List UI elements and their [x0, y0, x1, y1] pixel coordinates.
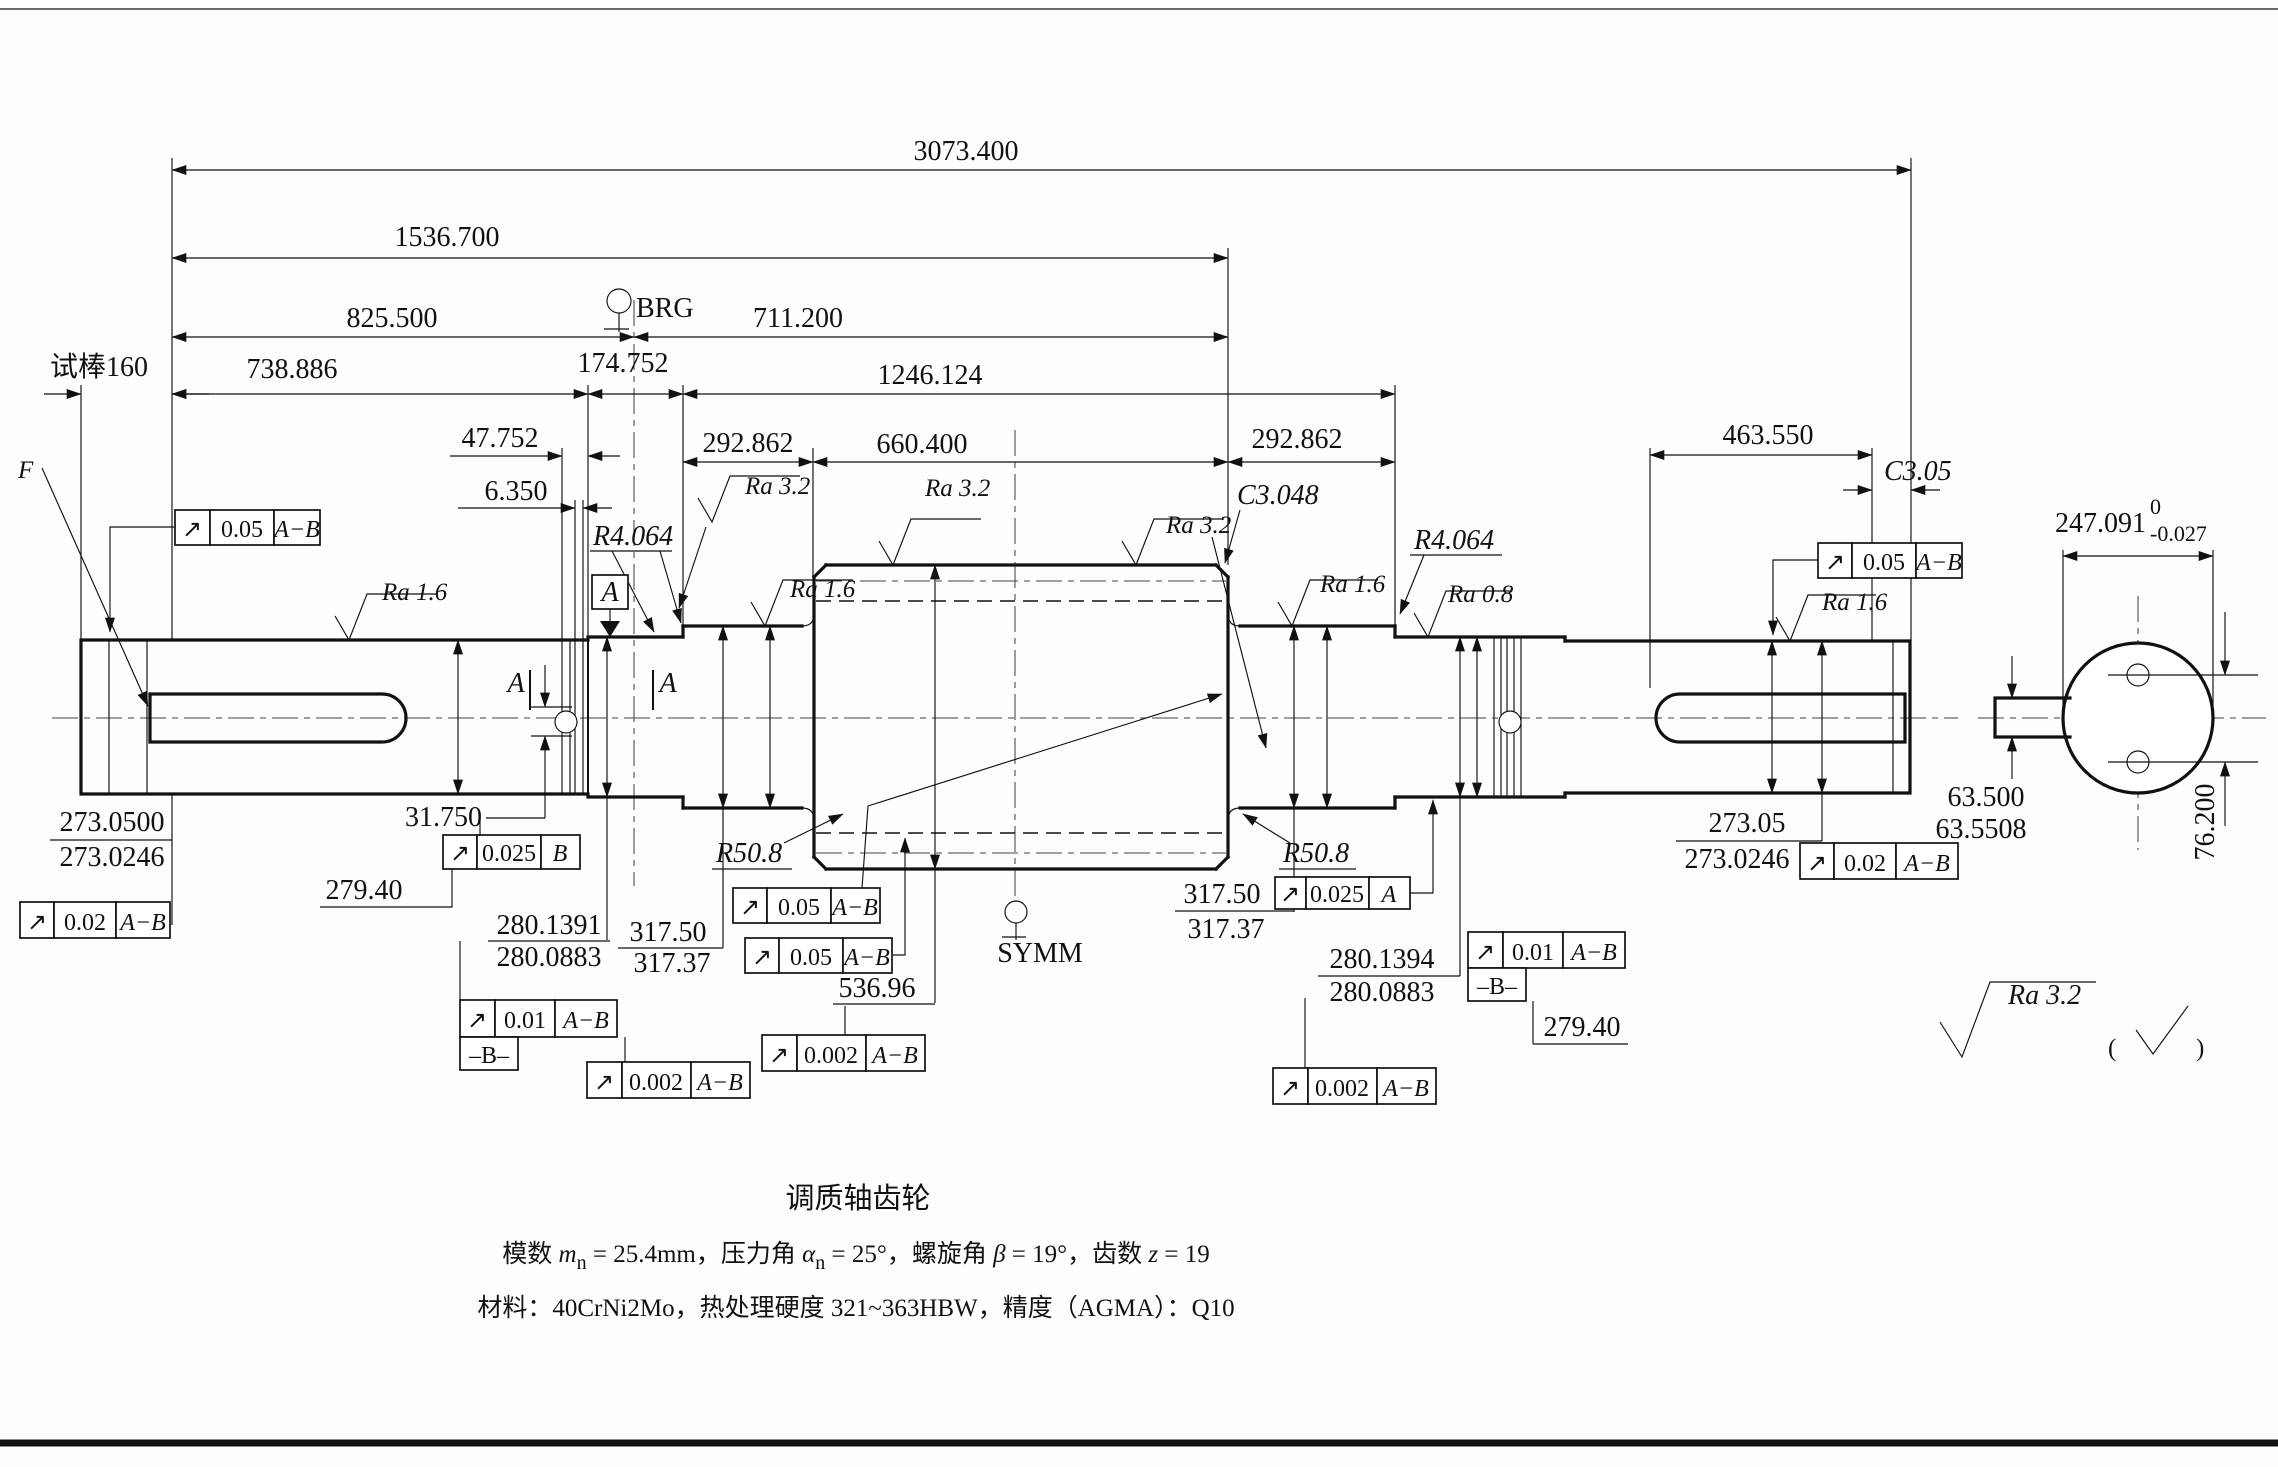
r508-left-label: R50.8 [715, 838, 782, 869]
runout-icon: ↗ [769, 1043, 789, 1069]
fcf-runout-002-left: ↗ 0.02 A−B [20, 902, 170, 938]
ra32-label3: Ra 3.2 [1165, 512, 1231, 539]
d536-label: 536.96 [839, 973, 916, 1004]
r508-right-label: R50.8 [1282, 838, 1349, 869]
fcf-runout-0002-c: ↗ 0.002 A−B [1273, 998, 1436, 1104]
gear-body [814, 565, 1228, 869]
datum-a-flag: A [592, 575, 628, 637]
fcf-value: 0.05 [221, 517, 263, 543]
fcf-datum: A [1380, 882, 1397, 908]
brg-centerline-mark: BRG [604, 289, 694, 332]
fcf-datum: A−B [1914, 550, 1962, 576]
dim-660-label: 660.400 [877, 429, 968, 460]
runout-icon: ↗ [594, 1070, 614, 1096]
fcf-value: 0.02 [64, 910, 106, 936]
ra16-label3: Ra 1.6 [1319, 571, 1386, 598]
d247-sup: 0 [2150, 494, 2161, 519]
dim-280-right-labels: 280.1394 280.0883 [1318, 944, 1460, 1008]
dim-292L-label: 292.862 [703, 428, 794, 459]
fcf-datum: A−B [870, 1043, 918, 1069]
dim-536-labels: 536.96 [833, 973, 935, 1004]
ra16-label: Ra 1.6 [381, 579, 448, 606]
drawing-canvas: 3073.400 1536.700 825.500 711.200 BRG 试棒… [0, 0, 2278, 1467]
fcf-value: 0.025 [482, 841, 536, 867]
page-border [0, 9, 2278, 1443]
runout-icon: ↗ [182, 517, 202, 543]
fcf-datum: A−B [1569, 940, 1617, 966]
d31750-label: 31.750 [405, 802, 482, 833]
runout-icon: ↗ [467, 1008, 487, 1034]
r4064-left-label: R4.064 [592, 521, 673, 552]
right-relief-grooves [1494, 637, 1521, 797]
ra16-label2: Ra 1.6 [789, 576, 856, 603]
fcf-value: 0.025 [1310, 882, 1364, 908]
fcf-runout-0002-b: ↗ 0.002 A−B [762, 1006, 925, 1071]
fcf-datum: A−B [272, 517, 320, 543]
symm-mark: SYMM [997, 901, 1083, 969]
d280L-lo: 280.0883 [497, 942, 602, 973]
datum-b-tag: –B– [1476, 974, 1518, 1000]
d317L-lo: 317.37 [634, 948, 711, 979]
ra16-label4: Ra 1.6 [1821, 589, 1888, 616]
paren-close: ) [2196, 1035, 2204, 1062]
dim-174-label: 174.752 [578, 348, 669, 379]
datum-b-tag: –B– [468, 1043, 510, 1069]
d280R-lo: 280.0883 [1330, 977, 1435, 1008]
dim-292R-label: 292.862 [1252, 424, 1343, 455]
r4064-right-label: R4.064 [1413, 525, 1494, 556]
dim-testbar: 试棒160 [44, 351, 209, 394]
c3048-label: C3.048 [1237, 480, 1319, 511]
callout-r508-right: R50.8 [1243, 814, 1356, 869]
symm-label: SYMM [997, 938, 1083, 969]
fcf-datum: A−B [561, 1008, 609, 1034]
paren-open: ( [2108, 1035, 2116, 1062]
d63-hi: 63.500 [1948, 782, 2025, 813]
fcf-datum: A−B [830, 895, 878, 921]
dim-738: 738.886 [172, 354, 588, 394]
dim-3073-label: 3073.400 [914, 136, 1019, 167]
d76-label: 76.200 [2190, 784, 2221, 861]
d317L-hi: 317.50 [630, 917, 707, 948]
fcf-runout-002-right: ↗ 0.02 A−B [1800, 843, 1958, 879]
dim-c305-label: C3.05 [1884, 456, 1952, 487]
datum-f-letter: F [17, 457, 34, 484]
runout-icon: ↗ [1280, 882, 1300, 908]
basic-check-icon [2136, 1006, 2188, 1054]
dim-463: 463.550 [1650, 420, 1872, 455]
callout-r508-left: R50.8 [712, 814, 843, 869]
dim-273-left-labels: 273.0500 273.0246 [50, 807, 172, 873]
d317R-hi: 317.50 [1184, 879, 1261, 910]
ra16-right-journal: Ra 1.6 [1278, 571, 1386, 626]
ra08-label: Ra 0.8 [1447, 581, 1514, 608]
dim-1536-label: 1536.700 [395, 222, 500, 253]
ra08-bearing-seat: Ra 0.8 [1414, 581, 1514, 637]
dim-47-label: 47.752 [462, 423, 539, 454]
top-dimensions: 3073.400 1536.700 825.500 711.200 BRG 试棒… [44, 136, 1952, 925]
fcf-value: 0.05 [790, 945, 832, 971]
dim-47: 47.752 [450, 423, 620, 456]
dim-63: 63.500 63.5508 [1936, 656, 2027, 845]
fcf-runout-001-right: ↗ 0.01 A−B –B– [1468, 932, 1625, 1001]
d247-main: 247.091 [2055, 508, 2146, 539]
dim-c305: C3.05 [1843, 456, 1952, 490]
d273L-hi: 273.0500 [60, 807, 165, 838]
runout-icon: ↗ [752, 945, 772, 971]
dim-738-label: 738.886 [247, 354, 338, 385]
d317R-lo: 317.37 [1188, 914, 1265, 945]
fcf-runout-0002-a: ↗ 0.002 A−B [587, 1037, 750, 1098]
runout-icon: ↗ [1475, 940, 1495, 966]
dim-292-left: 292.862 [683, 428, 813, 462]
d280R-hi: 280.1394 [1330, 944, 1435, 975]
dim-3073: 3073.400 [172, 136, 1911, 170]
end-view: 63.500 63.5508 76.200 247.091 0 -0.027 [1936, 494, 2259, 861]
dim-292-right: 292.862 [1228, 424, 1395, 462]
dim-317-left-labels: 317.50 317.37 [618, 917, 723, 979]
ra32-gear-right: Ra 3.2 [1122, 512, 1266, 748]
fcf-value: 0.002 [1315, 1076, 1369, 1102]
title-block: 调质轴齿轮 模数 mn = 25.4mm，压力角 αn = 25°，螺旋角 β … [477, 1182, 1234, 1322]
dim-174: 174.752 [578, 348, 684, 394]
runout-icon: ↗ [1825, 550, 1845, 576]
ra16-mid-journal: Ra 1.6 [751, 576, 856, 626]
dim-660: 660.400 [813, 429, 1228, 462]
d273R-hi: 273.05 [1709, 808, 1786, 839]
dim-711-label: 711.200 [753, 303, 843, 334]
radius-callouts: R4.064 C3.048 R4.064 R50.8 R50.8 [590, 480, 1502, 869]
dim-1536: 1536.700 [172, 222, 1228, 258]
feature-control-frames: ↗ 0.05 A−B ↗ 0.02 A−B ↗ 0.025 B ↗ 0.01 A… [20, 510, 1962, 1104]
d279L-label: 279.40 [326, 875, 403, 906]
d247-sub: -0.027 [2150, 521, 2207, 546]
runout-icon: ↗ [450, 841, 470, 867]
d280L-hi: 280.1391 [497, 910, 602, 941]
fcf-value: 0.05 [778, 895, 820, 921]
d63-lo: 63.5508 [1936, 814, 2027, 845]
runout-icon: ↗ [27, 910, 47, 936]
ra32-label: Ra 3.2 [744, 473, 810, 500]
dim-825-label: 825.500 [347, 303, 438, 334]
dim-1246: 1246.124 [683, 360, 1395, 394]
fcf-value: 0.02 [1844, 851, 1886, 877]
fcf-datum: A−B [695, 1070, 743, 1096]
dim-279-right: 279.40 [1533, 1001, 1628, 1044]
general-ra-label: Ra 3.2 [2007, 980, 2081, 1011]
title-line1: 调质轴齿轮 [785, 1182, 930, 1215]
fcf-value: 0.002 [629, 1070, 683, 1096]
d273L-lo: 273.0246 [60, 842, 165, 873]
fcf-value: 0.01 [504, 1008, 546, 1034]
fcf-datum: B [553, 841, 568, 867]
title-line2: 模数 mn = 25.4mm，压力角 αn = 25°，螺旋角 β = 19°，… [502, 1240, 1209, 1274]
fcf-datum: A−B [118, 910, 166, 936]
dim-testbar-label: 试棒160 [50, 351, 148, 383]
runout-icon: ↗ [1807, 851, 1827, 877]
ra32-label2: Ra 3.2 [924, 475, 990, 502]
runout-icon: ↗ [740, 895, 760, 921]
left-relief-grooves [555, 637, 588, 797]
dim-6350-label: 6.350 [485, 476, 548, 507]
brg-label: BRG [636, 293, 694, 324]
dim-463-label: 463.550 [1723, 420, 1814, 451]
dim-279-left: 279.40 [320, 868, 452, 907]
ra16-left-journal: Ra 1.6 [335, 579, 448, 640]
section-a-right: A [657, 668, 677, 699]
ra32-gear-left: Ra 3.2 [879, 475, 990, 565]
dim-1246-label: 1246.124 [878, 360, 983, 391]
dim-280-left-labels: 280.1391 280.0883 [488, 910, 610, 973]
d279R-label: 279.40 [1544, 1012, 1621, 1043]
dim-825-711: 825.500 711.200 [172, 303, 1228, 337]
general-roughness-note: Ra 3.2 ( ) [1940, 980, 2204, 1062]
fcf-value: 0.002 [804, 1043, 858, 1069]
callout-c3048: C3.048 [1225, 480, 1319, 563]
datum-a-triangle [600, 621, 620, 637]
shaft-outline [81, 565, 1910, 869]
datum-a-letter: A [599, 577, 619, 608]
runout-icon: ↗ [1280, 1076, 1300, 1102]
fcf-datum: A−B [1902, 851, 1950, 877]
fcf-value: 0.05 [1863, 550, 1905, 576]
fcf-datum: A−B [1381, 1076, 1429, 1102]
d273R-lo: 273.0246 [1685, 844, 1790, 875]
fcf-runout-005-left: ↗ 0.05 A−B [110, 510, 320, 632]
ra16-right-end-journal: Ra 1.6 [1776, 589, 1888, 641]
dim-31750: 31.750 [405, 802, 545, 833]
fcf-value: 0.01 [1512, 940, 1554, 966]
fcf-datum: A−B [842, 945, 890, 971]
shaft-gear-drawing: 3073.400 1536.700 825.500 711.200 BRG 试棒… [0, 0, 2278, 1467]
dim-6350: 6.350 [458, 476, 612, 508]
title-line3: 材料：40CrNi2Mo，热处理硬度 321~363HBW，精度（AGMA）：Q… [477, 1294, 1234, 1322]
section-a-left: A [505, 668, 525, 699]
